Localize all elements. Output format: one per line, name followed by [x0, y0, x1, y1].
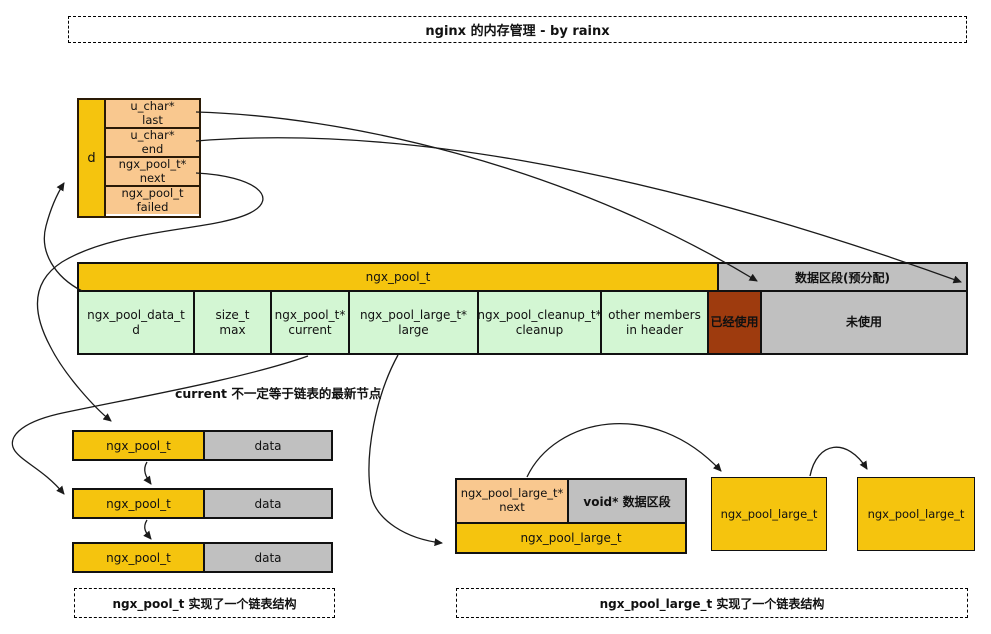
member-d-type: ngx_pool_data_t [87, 308, 185, 323]
pool-chain-node-2: ngx_pool_t data [72, 488, 333, 519]
data-area-header-label: 数据区段(预分配) [717, 264, 966, 290]
field-end-type: u_char* [130, 129, 174, 142]
pool-large-caption-text: ngx_pool_large_t 实现了一个链表结构 [600, 595, 825, 612]
pool-data-struct-fields: u_char* last u_char* end ngx_pool_t* nex… [106, 98, 201, 218]
field-last-type: u_char* [130, 100, 174, 113]
diagram-title: nginx 的内存管理 - by rainx [68, 16, 967, 43]
member-max-type: size_t [216, 308, 250, 323]
pool-chain-node-2-label: ngx_pool_t [74, 490, 205, 517]
arrow-large-next-to-node-1 [527, 424, 721, 477]
member-large-name: large [398, 323, 428, 338]
field-next-name: next [140, 172, 165, 185]
pool-chain-node-3-label: ngx_pool_t [74, 544, 205, 571]
member-other: other members in header [600, 292, 707, 353]
member-current-type: ngx_pool_t* [275, 308, 346, 323]
pool-chain-node-3: ngx_pool_t data [72, 542, 333, 573]
member-cleanup-name: cleanup [516, 323, 564, 338]
member-current-name: current [288, 323, 331, 338]
field-last-name: last [142, 114, 163, 127]
large-node-1: ngx_pool_large_t [711, 477, 827, 551]
arrow-current-to-chain-node-2 [12, 356, 308, 494]
field-last: u_char* last [106, 100, 199, 127]
arrow-chain-1-to-2 [145, 462, 151, 484]
used-region: 已经使用 [707, 292, 760, 353]
member-max-name: max [219, 323, 245, 338]
arrow-chain-2-to-3 [145, 520, 151, 539]
arrow-last-to-used-boundary [196, 112, 757, 281]
member-d: ngx_pool_data_t d [79, 292, 193, 353]
pool-data-struct-label: d [77, 98, 106, 218]
field-failed-name: failed [137, 201, 169, 214]
unused-region-label: 未使用 [846, 315, 882, 330]
member-current: ngx_pool_t* current [270, 292, 348, 353]
diagram-canvas: { "title": "nginx 的内存管理 - by rainx", "co… [0, 0, 991, 634]
pool-chain-node-1-label: ngx_pool_t [74, 432, 205, 459]
pool-large-caption: ngx_pool_large_t 实现了一个链表结构 [456, 588, 968, 618]
large-node-2: ngx_pool_large_t [857, 477, 975, 551]
pool-bar-members: ngx_pool_data_t d size_t max ngx_pool_t*… [79, 290, 966, 353]
member-max: size_t max [193, 292, 270, 353]
pool-header-label: ngx_pool_t [79, 264, 717, 290]
pool-large-struct-label: ngx_pool_large_t [457, 522, 685, 552]
pool-chain-node-3-data: data [205, 544, 331, 571]
diagram-title-text: nginx 的内存管理 - by rainx [425, 20, 609, 39]
member-cleanup: ngx_pool_cleanup_t* cleanup [477, 292, 600, 353]
arrow-end-to-block-end [196, 138, 961, 282]
pool-chain-node-2-data: data [205, 490, 331, 517]
field-failed-type: ngx_pool_t [122, 187, 184, 200]
arrow-large-node-1-to-2 [810, 447, 867, 476]
large-next-name: next [499, 501, 524, 515]
unused-region: 未使用 [760, 292, 966, 353]
large-next-field: ngx_pool_large_t* next [457, 480, 569, 522]
field-end: u_char* end [106, 127, 199, 156]
member-d-name: d [132, 323, 140, 338]
used-region-label: 已经使用 [710, 315, 758, 330]
field-failed: ngx_pool_t failed [106, 185, 199, 214]
member-other-name: in header [626, 323, 683, 338]
pool-large-struct: ngx_pool_large_t* next void* 数据区段 ngx_po… [455, 478, 687, 554]
pool-chain-node-1-data: data [205, 432, 331, 459]
current-note: current 不一定等于链表的最新节点 [175, 383, 381, 402]
field-end-name: end [142, 143, 164, 156]
field-next-type: ngx_pool_t* [119, 158, 187, 171]
pool-data-struct: d u_char* last u_char* end ngx_pool_t* n… [77, 98, 201, 218]
large-data-field: void* 数据区段 [569, 480, 685, 522]
field-next: ngx_pool_t* next [106, 156, 199, 185]
pool-chain-caption-text: ngx_pool_t 实现了一个链表结构 [113, 595, 297, 612]
pool-chain-caption: ngx_pool_t 实现了一个链表结构 [74, 588, 335, 618]
member-cleanup-type: ngx_pool_cleanup_t* [477, 308, 601, 323]
member-large: ngx_pool_large_t* large [348, 292, 477, 353]
pool-large-struct-top: ngx_pool_large_t* next void* 数据区段 [457, 480, 685, 522]
pool-chain-node-1: ngx_pool_t data [72, 430, 333, 461]
member-large-type: ngx_pool_large_t* [360, 308, 467, 323]
large-next-type: ngx_pool_large_t* [461, 487, 564, 501]
member-other-type: other members [608, 308, 701, 323]
pool-bar: ngx_pool_t 数据区段(预分配) ngx_pool_data_t d s… [77, 262, 968, 355]
pool-bar-header: ngx_pool_t 数据区段(预分配) [79, 264, 966, 290]
